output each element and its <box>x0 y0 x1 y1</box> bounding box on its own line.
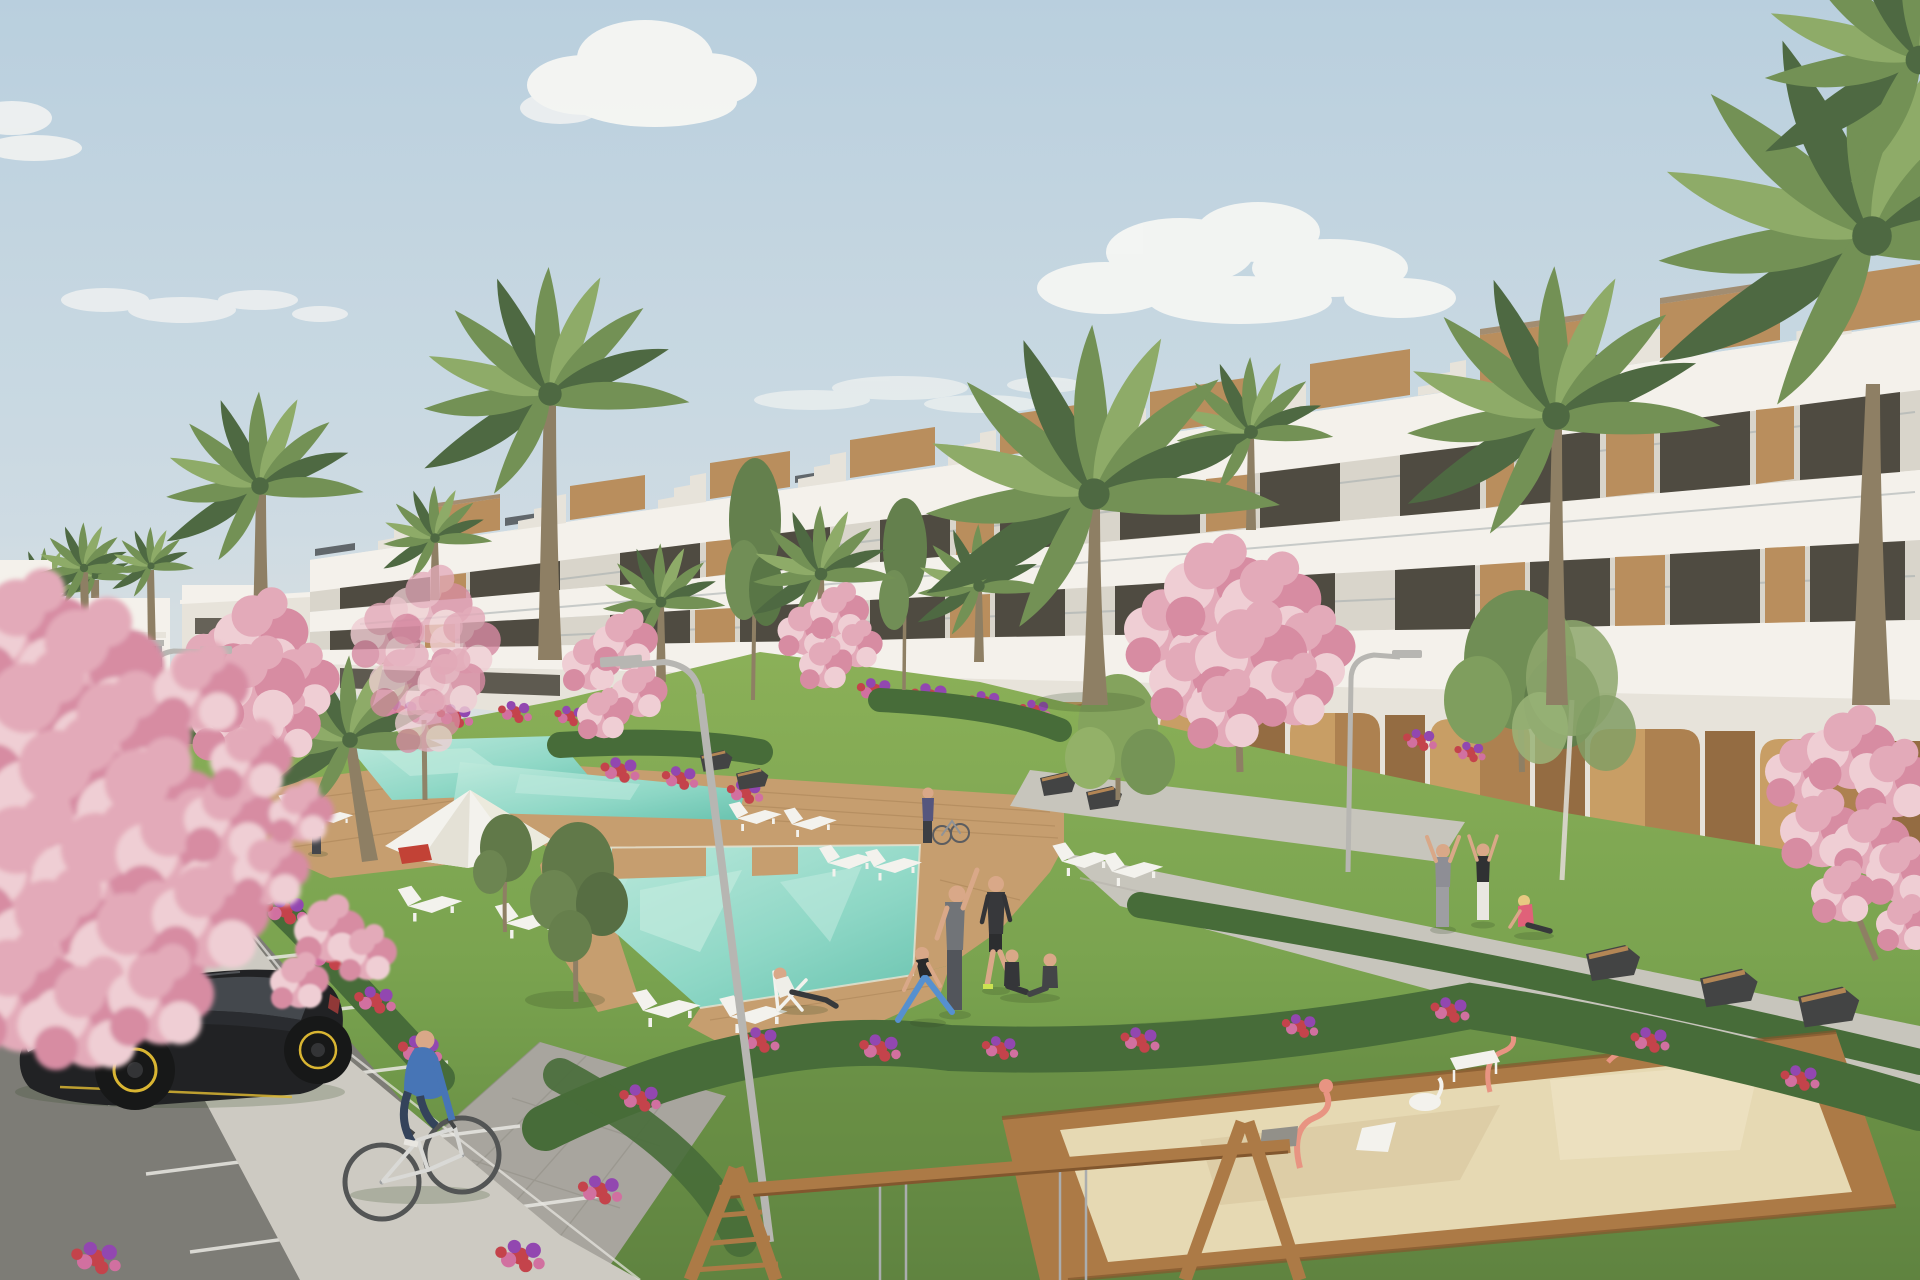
light-wash <box>0 0 1920 1280</box>
render-canvas <box>0 0 1920 1280</box>
architectural-render: { "meta": { "title": "New-build resident… <box>0 0 1920 1280</box>
